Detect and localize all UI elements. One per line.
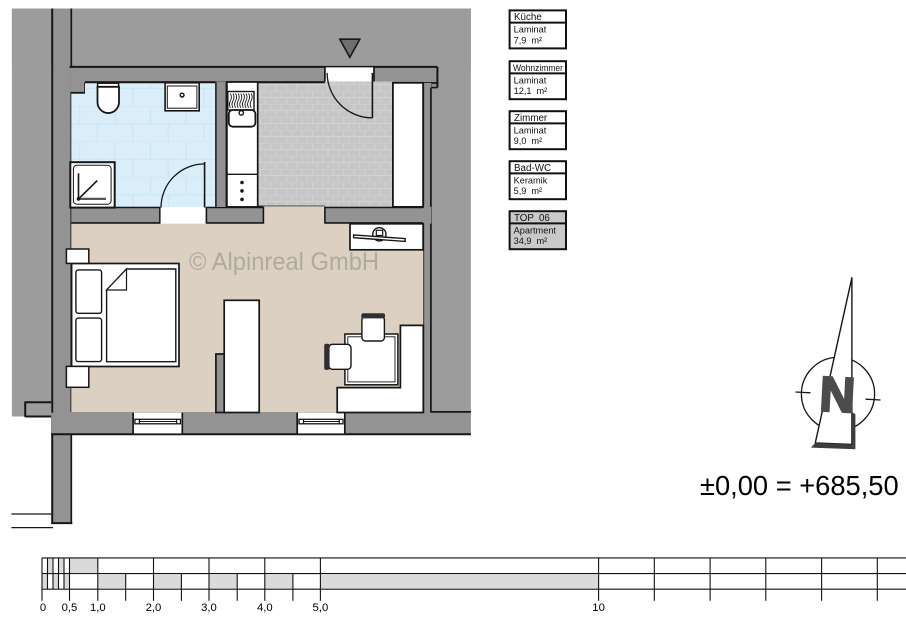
svg-text:2,0: 2,0 <box>146 602 162 614</box>
svg-text:1,0: 1,0 <box>90 602 106 614</box>
svg-text:Laminat: Laminat <box>514 75 547 85</box>
svg-text:© Alpinreal GmbH: © Alpinreal GmbH <box>189 248 379 276</box>
svg-text:3,0: 3,0 <box>201 602 217 614</box>
svg-text:0: 0 <box>40 602 46 614</box>
svg-text:10: 10 <box>592 602 605 614</box>
svg-text:4,0: 4,0 <box>257 602 273 614</box>
svg-text:12,1m²: 12,1m² <box>514 86 548 96</box>
svg-text:Wohnzimmer: Wohnzimmer <box>513 62 563 73</box>
svg-text:5,0: 5,0 <box>313 602 329 614</box>
svg-text:34,9m²: 34,9m² <box>514 236 548 246</box>
svg-text:Keramik: Keramik <box>514 175 548 185</box>
svg-text:Küche: Küche <box>514 12 542 23</box>
svg-text:Laminat: Laminat <box>514 125 547 135</box>
svg-text:Apartment: Apartment <box>514 225 557 235</box>
svg-text:Zimmer: Zimmer <box>514 113 548 124</box>
svg-text:Laminat: Laminat <box>514 25 547 35</box>
svg-text:0,5: 0,5 <box>62 602 78 614</box>
svg-text:±0,00 = +685,50: ±0,00 = +685,50 <box>700 470 899 501</box>
svg-text:Bad-WC: Bad-WC <box>514 163 551 174</box>
svg-text:N: N <box>818 368 856 424</box>
svg-text:TOP06: TOP06 <box>514 213 550 224</box>
